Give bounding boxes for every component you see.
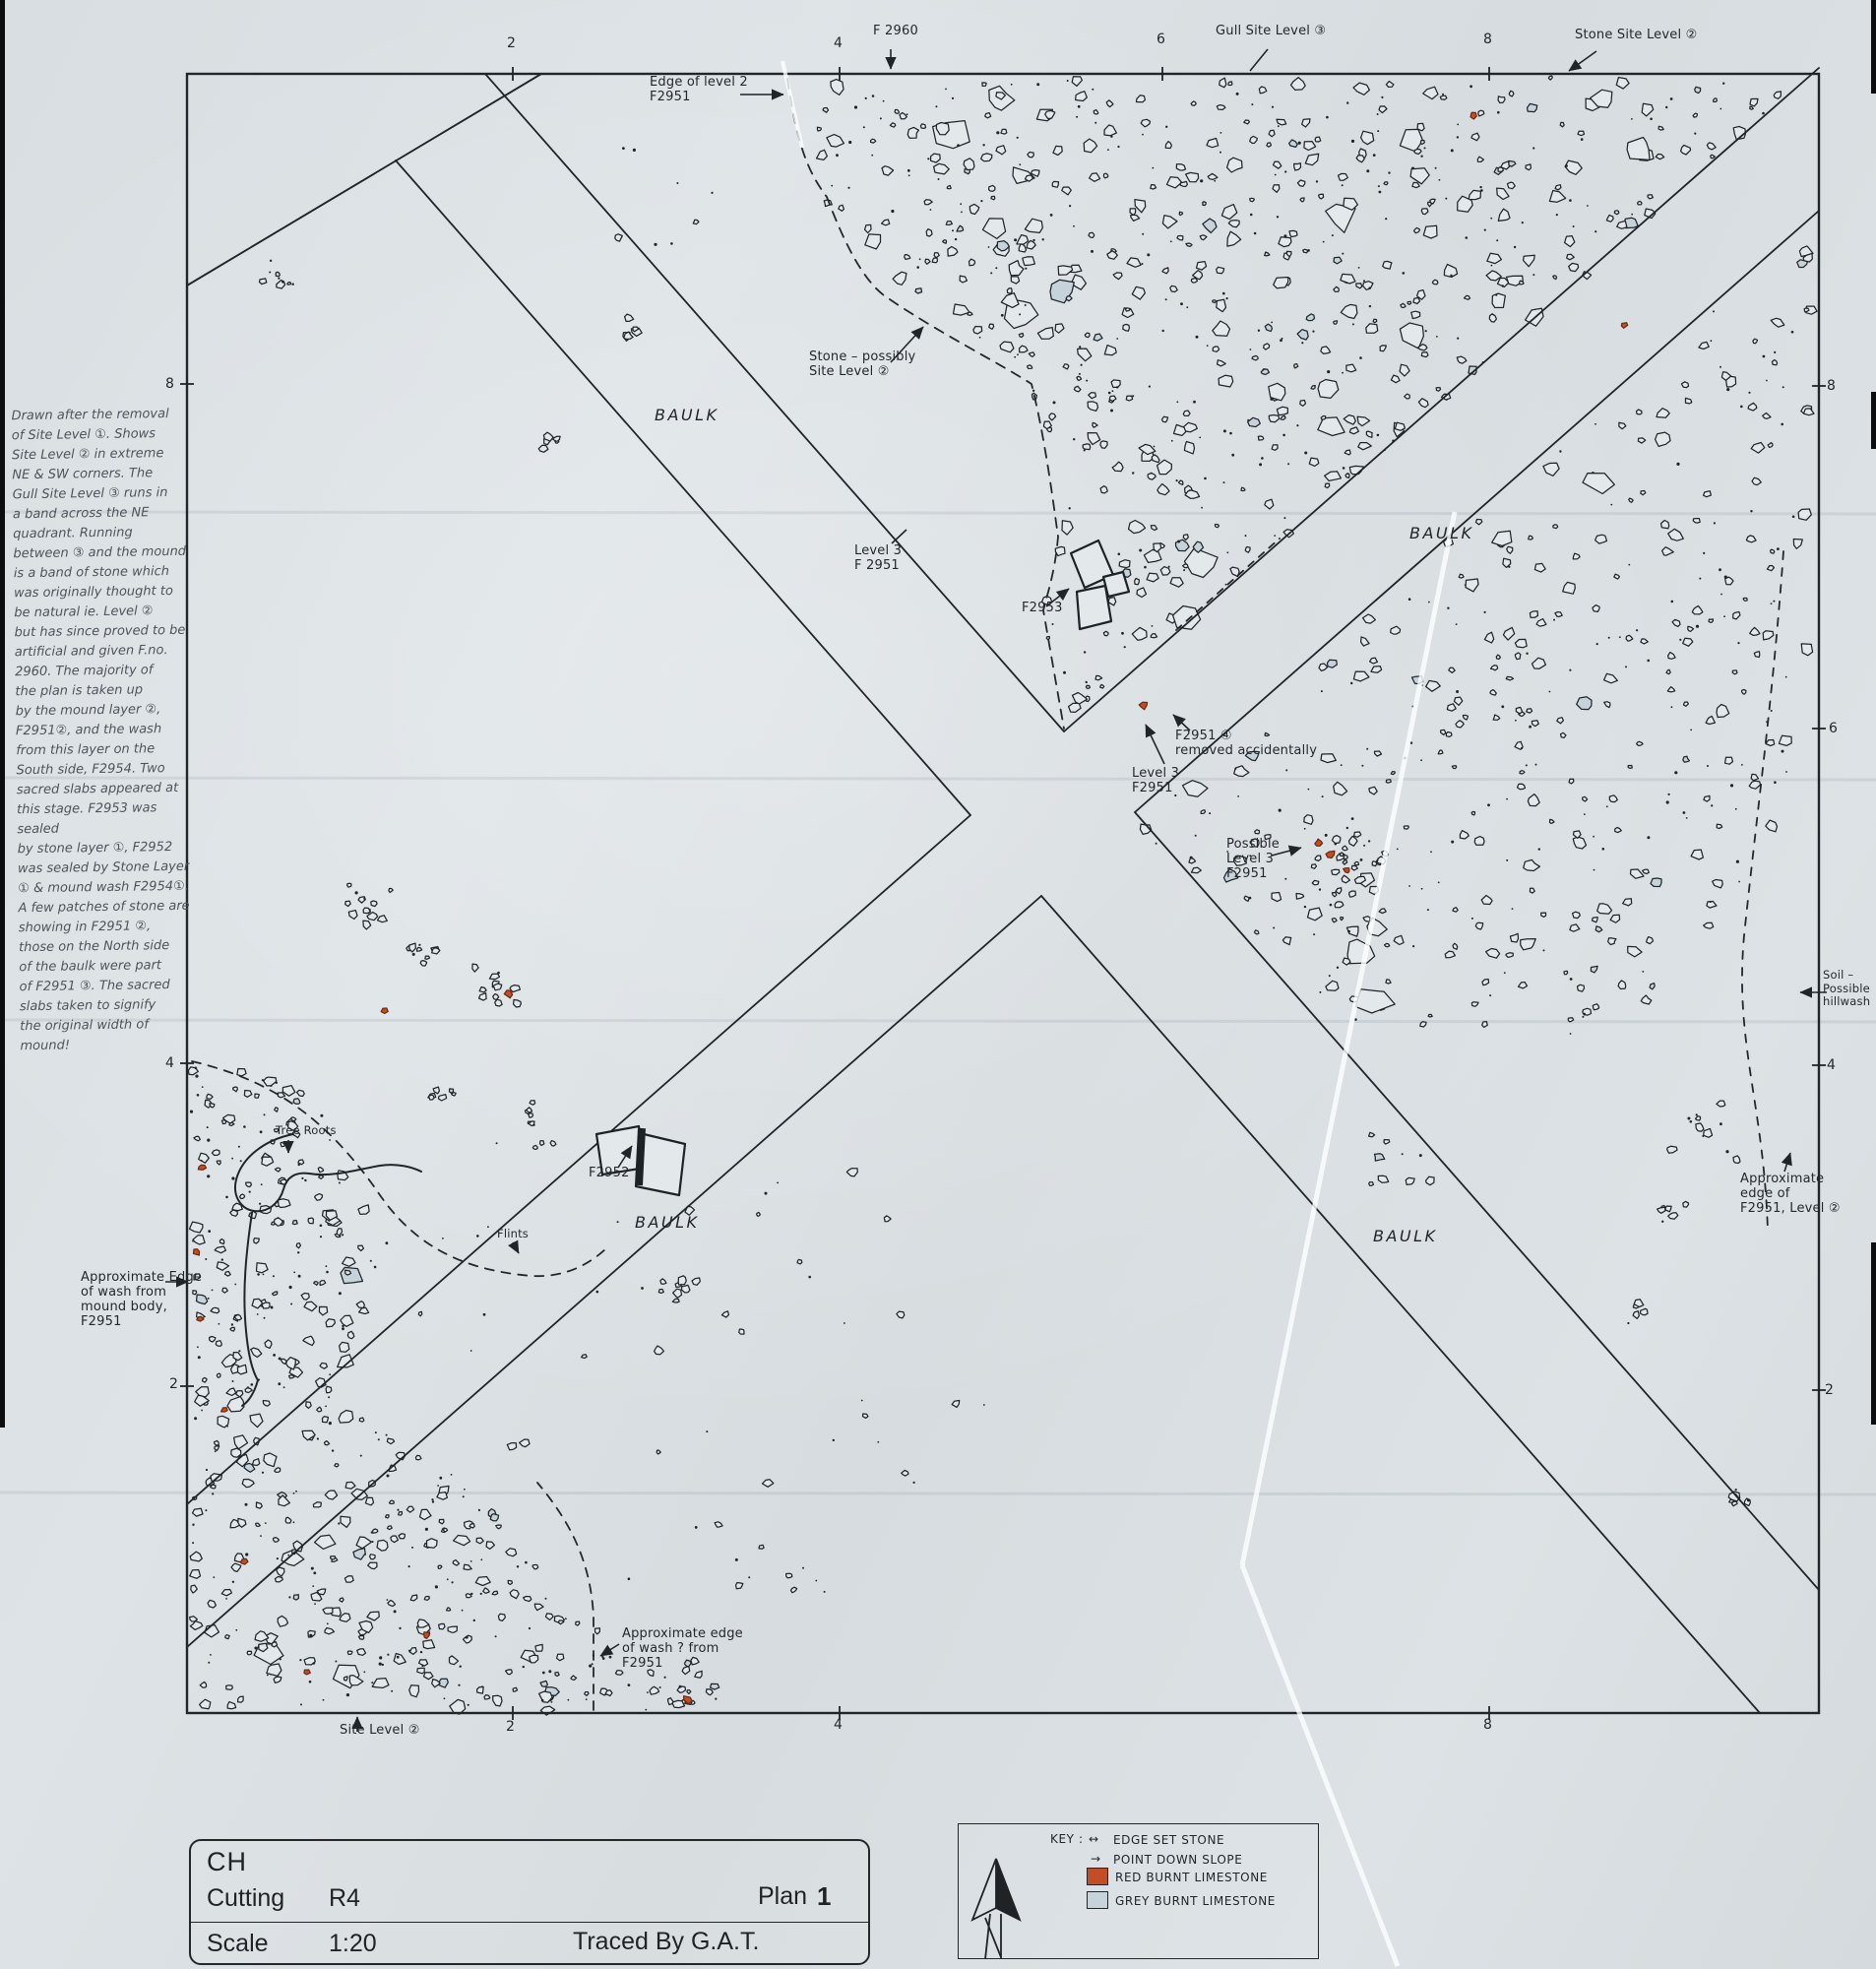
grid-number-right: 2 [1825,1382,1834,1398]
cutting-value: R4 [329,1884,360,1913]
label-f2951-removed: F2951 ④ removed accidentally [1175,729,1317,758]
label-f2952: F2952 [589,1166,630,1180]
label-approx-edge-f2951-level2: Approximate edge of F2951, Level ② [1740,1172,1841,1216]
excavation-plan-drawing [0,0,1876,1969]
key-title: KEY : [1050,1832,1084,1846]
plan-sheet: Drawn after the removal of Site Level ①.… [0,0,1876,1969]
grid-number-top: 4 [834,35,843,51]
east-wash-edge-dashed [1742,551,1783,1231]
key-item-point-down-slope: POINT DOWN SLOPE [1113,1853,1242,1867]
grid-number-top: 6 [1157,32,1165,47]
label-leader-arrows [165,49,1827,1732]
grid-number-top: 8 [1483,32,1492,47]
key-box: KEY : ↔ EDGE SET STONE → POINT DOWN SLOP… [958,1823,1319,1959]
scale-label: Scale [207,1930,269,1958]
label-approx-edge-wash-bottom: Approximate edge of wash ? from F2951 [622,1626,743,1671]
label-soil-hillwash: Soil – Possible hillwash [1823,969,1876,1009]
scan-edge-artifact [1871,0,1876,94]
scan-edge-artifact [1871,1242,1876,1425]
baulk-label-sw: BAULK [635,1213,700,1232]
corner-cut-line [187,74,541,286]
paper-fold-lines [0,512,1876,1494]
west-wash-edge-dashed [192,1061,608,1276]
site-code: CH [207,1847,247,1877]
grid-number-bottom: 4 [834,1717,843,1733]
margin-note: Drawn after the removal of Site Level ①.… [11,405,193,1056]
key-item-red-burnt-limestone: RED BURNT LIMESTONE [1115,1871,1268,1884]
grid-number-left: 2 [169,1376,178,1392]
grid-number-right: 4 [1827,1057,1836,1073]
arrow-icon: → [1091,1852,1101,1866]
plan-label: Plan [758,1882,807,1911]
grid-number-right: 6 [1829,721,1838,736]
scale-value: 1:20 [329,1930,377,1958]
title-block: CH Cutting R4 Plan 1 Scale 1:20 Traced B… [189,1839,870,1965]
label-site-level-2: Site Level ② [340,1723,420,1738]
scan-edge-artifact [0,0,5,1428]
baulk-label-nw: BAULK [655,406,719,424]
label-approx-edge-wash-left: Approximate Edge of wash from mound body… [81,1270,202,1329]
stone-scatter-field [188,76,1817,1715]
f2953-slab [1103,572,1129,597]
label-possible-level3: Possible Level 3 F2951 [1226,837,1280,881]
label-level3-f2951-south: Level 3 F2951 [1132,766,1179,795]
grid-number-right: 8 [1827,378,1836,394]
label-stone-possibly-site-level-2: Stone – possibly Site Level ② [809,349,915,379]
label-edge-of-level-2: Edge of level 2 F2951 [650,75,748,104]
label-f2960: F 2960 [856,24,935,38]
scan-creases [782,61,1455,1966]
grid-number-left: 8 [165,376,174,392]
label-gull-site-level: Gull Site Level ③ [1216,24,1326,38]
grey-limestone-swatch [1087,1891,1108,1909]
f2953-slab [1077,586,1111,629]
grid-number-bottom: 2 [506,1719,515,1735]
label-tree-roots: Tree Roots [276,1124,337,1138]
dashed-context-edges [192,79,1783,1710]
grid-number-bottom: 8 [1483,1717,1492,1733]
label-stone-site-level: Stone Site Level ② [1575,28,1697,42]
double-arrow-icon: ↔ [1089,1832,1099,1846]
cutting-label: Cutting [207,1884,284,1913]
cutting-border [187,74,1819,1713]
grid-number-top: 2 [507,35,516,51]
plan-number: 1 [817,1881,831,1912]
south-wash-edge-dashed [537,1483,594,1710]
label-f2953: F2953 [1022,601,1063,615]
title-block-divider [191,1922,868,1923]
label-level3-f2951-nw: Level 3 F 2951 [854,543,902,573]
baulk-label-ne: BAULK [1409,524,1474,542]
key-item-grey-burnt-limestone: GREY BURNT LIMESTONE [1115,1894,1276,1908]
red-limestone-swatch [1087,1868,1108,1885]
baulk-label-se: BAULK [1373,1227,1438,1245]
edge-set-stone-mark [639,1128,642,1185]
traced-by: Traced By G.A.T. [573,1928,759,1956]
scan-edge-artifact [1871,392,1876,449]
grid-number-left: 4 [165,1055,174,1071]
key-item-edge-set-stone: EDGE SET STONE [1113,1833,1224,1847]
label-flints: Flints [497,1228,529,1241]
